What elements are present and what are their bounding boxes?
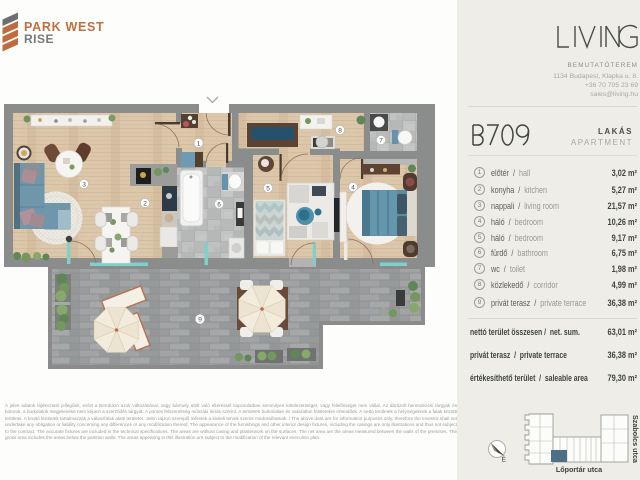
svg-text:1: 1 — [197, 141, 201, 148]
svg-text:3: 3 — [82, 182, 86, 189]
svg-text:2: 2 — [143, 201, 147, 208]
svg-text:4: 4 — [351, 185, 355, 192]
svg-text:É: É — [502, 455, 507, 464]
svg-text:8: 8 — [338, 128, 342, 135]
svg-text:9: 9 — [198, 317, 202, 324]
svg-text:6: 6 — [217, 202, 221, 209]
svg-text:Lőportár utca: Lőportár utca — [556, 465, 603, 474]
svg-text:7: 7 — [379, 138, 383, 145]
svg-text:5: 5 — [266, 186, 270, 193]
svg-text:Szabolcs utca: Szabolcs utca — [631, 415, 640, 464]
